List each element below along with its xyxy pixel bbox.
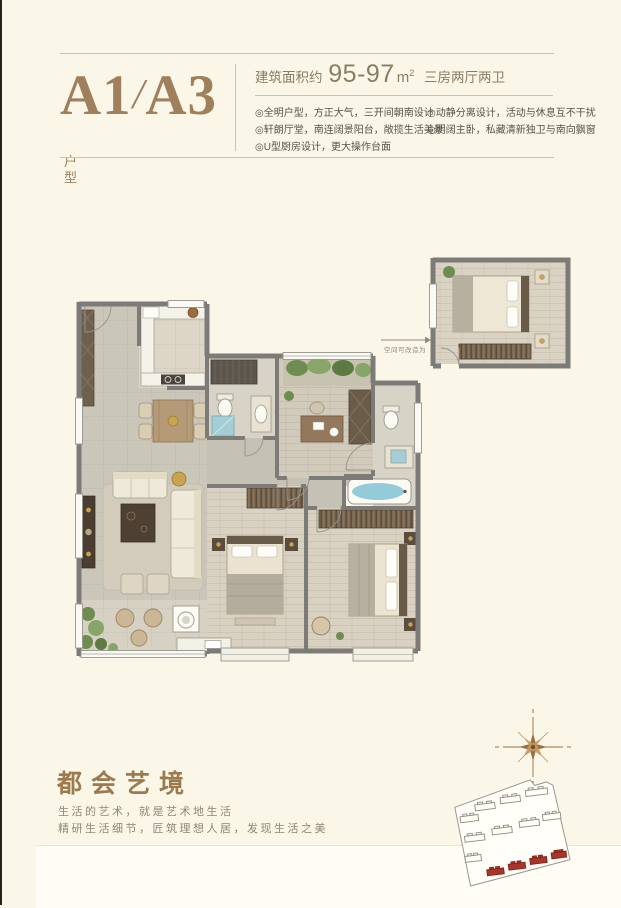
header-top-rule — [60, 53, 554, 54]
study-plant — [284, 391, 294, 401]
convertible-bed — [453, 276, 529, 332]
laundry-closet — [211, 360, 257, 384]
feature-list: ◎全明户型，方正大气，三开间朝南设计 ◎轩朗厅堂，南连阔景阳台，敞揽生活美景 ◎… — [255, 105, 555, 156]
feature-bullet: ◎明阔主卧，私藏清新独卫与南向飘窗 — [427, 122, 553, 139]
compass-icon — [495, 709, 571, 785]
layout-summary: 三房两厅两卫 — [424, 70, 505, 85]
header-bottom-rule — [60, 157, 554, 158]
toilet — [217, 394, 233, 417]
shower — [212, 416, 234, 436]
unit-code-a1: A1 — [60, 64, 132, 127]
bedroom2-wardrobe — [247, 488, 303, 508]
feature-bullet: ◎全明户型，方正大气，三开间朝南设计 — [255, 105, 427, 122]
feature-column-right: ◎动静分离设计，活动与休息互不干扰 ◎明阔主卧，私藏清新独卫与南向飘窗 — [427, 105, 553, 156]
convertible-plant — [443, 266, 455, 278]
feature-bullet: ◎轩朗厅堂，南连阔景阳台，敞揽生活美景 — [255, 122, 427, 139]
conversion-note: 空间可改造为 — [384, 345, 426, 354]
slogan-line: 生活的艺术，就是艺术地生活 — [58, 804, 328, 821]
master-toilet — [383, 406, 399, 429]
convertible-room — [430, 258, 569, 366]
unit-description: 建筑面积约 95-97m2 三房两厅两卫 ◎全明户型，方正大气，三开间朝南设计 … — [255, 60, 555, 156]
header-vertical-divider — [235, 64, 236, 151]
brochure-page: A1/A3户型 建筑面积约 95-97m2 三房两厅两卫 ◎全明户型，方正大气，… — [0, 0, 621, 908]
page-left-edge-line — [0, 0, 2, 905]
feature-bullet: ◎U型厨房设计，更大操作台面 — [255, 139, 427, 156]
footer-slogans: 生活的艺术，就是艺术地生活 精研生活细节，匠筑理想人居，发现生活之美 — [58, 804, 328, 838]
bedroom2-bed — [227, 536, 283, 625]
area-underline — [255, 95, 553, 96]
slogan-line: 精研生活细节，匠筑理想人居，发现生活之美 — [58, 821, 328, 838]
side-table-gold — [172, 472, 186, 486]
site-plan — [453, 776, 572, 886]
coffee-table — [121, 504, 155, 542]
master-vanity — [385, 446, 413, 468]
unit-code-a3: A3 — [145, 64, 217, 127]
convertible-wardrobe — [459, 344, 531, 359]
fridge — [143, 307, 159, 318]
bathroom-vanity — [251, 396, 271, 432]
unit-title: A1/A3户型 — [60, 63, 230, 185]
corner-art — [438, 695, 616, 890]
feature-column-left: ◎全明户型，方正大气，三开间朝南设计 ◎轩朗厅堂，南连阔景阳台，敞揽生活美景 ◎… — [255, 105, 427, 156]
area-unit: m2 — [397, 69, 415, 86]
arrow-right-icon — [425, 337, 431, 344]
conversion-annotation: 空间可改造为 — [381, 337, 431, 354]
rattan-chair — [312, 617, 330, 635]
floor-plan: 空间可改造为 — [55, 248, 575, 688]
study-wardrobe — [349, 390, 371, 444]
area-value: 95-97 — [328, 60, 394, 88]
sofa-three-seat — [171, 490, 201, 578]
unit-code-slash: / — [133, 72, 145, 118]
entry-foyer — [81, 310, 94, 406]
bathtub — [348, 479, 411, 504]
unit-type-suffix: 户型 — [64, 154, 78, 185]
area-label: 建筑面积约 — [255, 70, 323, 85]
footer-title: 都会艺境 — [57, 764, 193, 800]
sofa-two-seat — [113, 472, 167, 498]
washing-machine — [173, 606, 199, 632]
stove — [161, 375, 185, 385]
master-bed — [349, 544, 407, 616]
feature-bullet: ◎动静分离设计，活动与休息互不干扰 — [427, 105, 553, 122]
kitchen-sink — [188, 308, 198, 318]
area-line: 建筑面积约 95-97m2 三房两厅两卫 — [255, 60, 555, 89]
master-plant — [336, 632, 344, 640]
tv-cabinet — [82, 496, 95, 568]
